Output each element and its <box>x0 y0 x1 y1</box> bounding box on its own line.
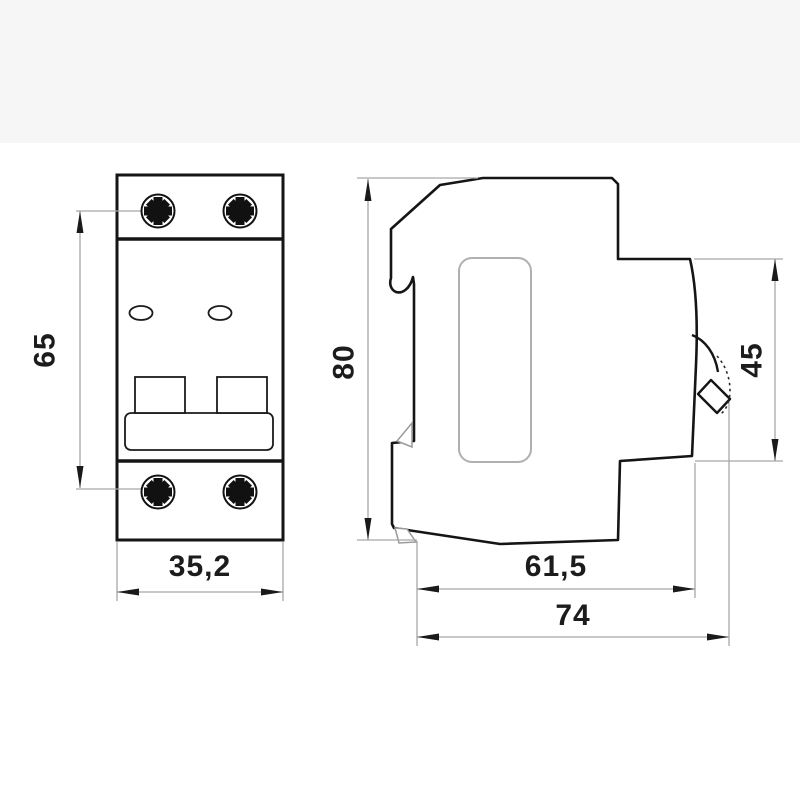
indicator-window-icon <box>209 306 232 320</box>
toggle-handle-icon <box>135 377 185 413</box>
technical-drawing: 65 35,2 80 45 61,5 74 <box>0 0 800 800</box>
dim-label-61-5: 61,5 <box>525 550 587 583</box>
dim-label-74: 74 <box>555 599 590 632</box>
toggle-bar-icon <box>125 413 273 450</box>
dim-label-35-2: 35,2 <box>169 550 231 583</box>
toggle-handle-icon <box>217 377 267 413</box>
screw-head-icon <box>142 476 175 509</box>
screw-head-icon <box>224 476 257 509</box>
dim-label-80: 80 <box>328 344 361 379</box>
screw-head-icon <box>142 195 175 228</box>
indicator-window-icon <box>130 306 153 320</box>
screw-head-icon <box>224 195 257 228</box>
dim-label-65: 65 <box>29 332 62 367</box>
background-top-band <box>0 0 800 143</box>
technical-drawing-page: 65 35,2 80 45 61,5 74 <box>0 0 800 800</box>
dim-label-45: 45 <box>736 342 769 377</box>
